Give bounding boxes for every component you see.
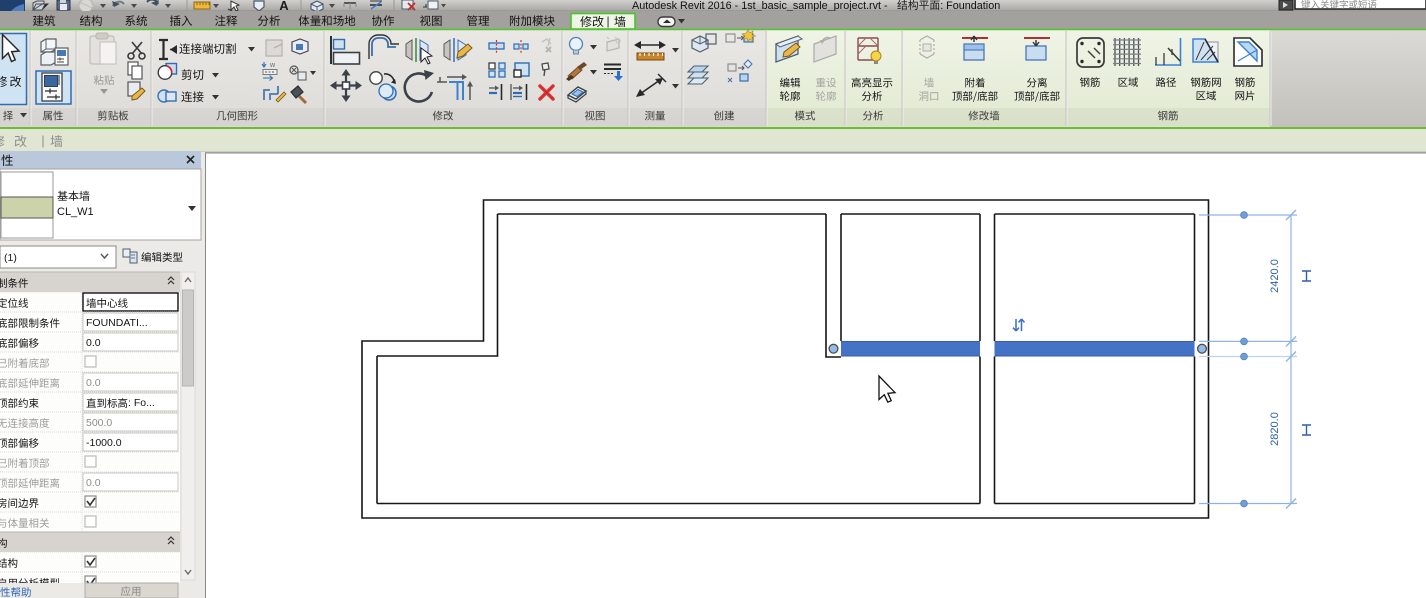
svg-text:0.0: 0.0	[86, 377, 101, 389]
svg-text:: Foundation: : Foundation	[940, 0, 1000, 12]
svg-text:Autodesk Revit 2016 - 1st_basi: Autodesk Revit 2016 - 1st_basic_sample_p…	[632, 0, 888, 12]
svg-text:|: |	[606, 14, 609, 28]
svg-text:-1000.0: -1000.0	[86, 437, 122, 449]
svg-text:0.0: 0.0	[86, 337, 101, 349]
svg-text:2820.0: 2820.0	[1269, 412, 1281, 446]
svg-text:w: w	[269, 62, 276, 69]
svg-text:|: |	[41, 134, 44, 148]
svg-text:CL_W1: CL_W1	[57, 206, 94, 218]
svg-text:FOUNDATI...: FOUNDATI...	[86, 317, 148, 329]
svg-text:: Fo...: : Fo...	[128, 397, 155, 409]
svg-text:(1): (1)	[4, 252, 17, 264]
svg-text:500.0: 500.0	[86, 417, 112, 429]
svg-text:0.0: 0.0	[86, 477, 101, 489]
svg-text:2420.0: 2420.0	[1269, 259, 1281, 293]
